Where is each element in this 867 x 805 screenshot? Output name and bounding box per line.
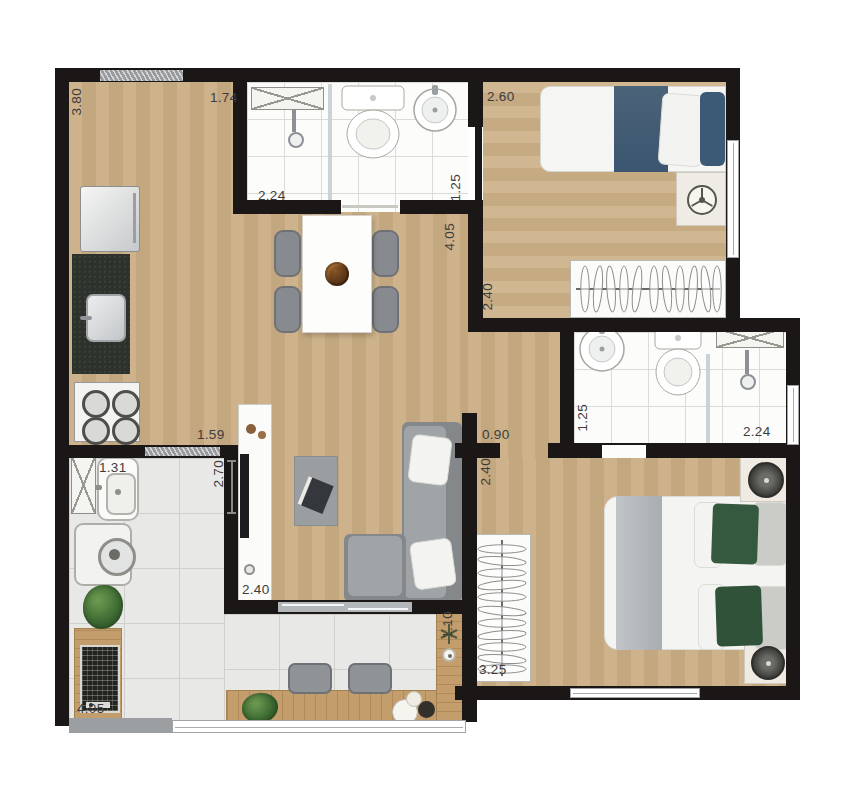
fan-icon [677,173,727,227]
dimension-label: 1.74 [210,91,237,105]
wall [455,443,500,458]
entry-hatch [100,70,183,81]
dimension-label: 0.90 [482,428,509,442]
dimension-label: 1.31 [99,461,126,475]
dimension-tick [227,512,236,514]
dimension-label: 4.05 [443,223,457,250]
fridge [80,186,140,252]
bed-blanket [616,496,662,650]
sofa-chaise [344,534,406,602]
dimension-tick [227,460,236,462]
kitchen-sink-icon [86,294,126,342]
burner-icon [82,390,110,418]
washer-drum [109,549,120,560]
dimension-label: 1.25 [449,174,463,201]
dimension-label: 2.40 [479,458,493,485]
burner-icon [112,390,140,418]
tv-icon [240,454,249,538]
burner-icon [82,417,110,445]
decor-plates-icon [442,648,456,662]
fridge-handle [133,193,136,243]
wall [468,205,483,330]
wardrobe [570,260,726,318]
lamp-icon [751,646,785,680]
shower-icon [287,106,301,148]
dimension-label: 1.10 [441,611,455,638]
shower-pipe [745,350,749,374]
glass-partition [328,84,332,212]
stove-icon [74,382,140,442]
bathroom-sink-icon [408,84,462,134]
bed-cushion-green [715,585,763,647]
window [787,385,799,445]
wall [560,318,574,458]
dimension-label: 2.24 [258,189,285,203]
wall [55,68,69,726]
dimension-label: 2.40 [481,283,495,310]
tub-basin [106,473,136,515]
service-door-hatch [145,447,220,456]
balcony-railing [172,720,466,733]
dining-chair [372,230,399,277]
bathroom1-door-threshold [342,205,398,208]
wardrobe-hangers-icon [571,261,725,317]
panel-decor-icon [258,431,266,439]
dimension-label: 2.24 [743,425,770,439]
dimension-label: 2.70 [212,460,226,487]
panel-decor-icon [244,564,255,575]
dimension-label: 2.40 [242,583,269,597]
centerpiece-icon [325,262,349,286]
dimension-line [231,460,233,514]
wall [468,318,800,332]
dimension-label: 2.60 [487,90,514,104]
shaft-icon [71,456,96,514]
sofa-seat [348,536,402,596]
shower-icon [738,350,754,390]
dimension-label: 3.25 [479,663,506,677]
bed-cushion [700,92,725,166]
washing-machine-icon [74,523,132,586]
dining-chair [274,230,301,277]
shelf-icon [251,87,324,110]
dimension-label: 3.80 [70,88,84,115]
sofa-pillow [407,434,453,487]
wall [468,82,483,127]
floor-plan: 3.80 1.74 2.24 1.25 4.05 2.60 2.40 1.25 … [0,0,867,805]
wall [786,318,800,700]
window [570,688,700,698]
dining-chair [274,286,301,333]
drain [115,489,121,495]
stool [348,663,392,694]
shower-head [288,132,304,148]
dot [448,654,452,658]
nightstand [676,172,726,226]
dining-chair [372,286,399,333]
wall [462,413,477,722]
sofa-pillow [409,537,457,590]
panel-decor-icon [246,424,256,434]
glass-partition [706,354,710,454]
dimension-label: 4.05 [77,702,104,716]
toilet-icon [336,84,410,160]
stool [288,663,332,694]
window [727,140,739,258]
dimension-label: 1.59 [197,428,224,442]
plate [406,691,422,707]
sliding-door [278,602,412,612]
faucet-icon [80,316,92,320]
wall [560,443,800,458]
parapet [69,718,172,733]
wall [233,200,341,214]
shower-head [740,374,756,390]
bed-cushion-green [711,503,759,565]
dimension-label: 1.25 [576,404,590,431]
toilet-icon [648,326,708,398]
sliding-door-leaf [475,127,482,205]
wardrobe [473,534,531,682]
wall [548,443,560,458]
door-opening [602,445,646,458]
wardrobe-hangers-icon [474,535,530,681]
lamp-icon [748,462,784,498]
burner-icon [112,417,140,445]
